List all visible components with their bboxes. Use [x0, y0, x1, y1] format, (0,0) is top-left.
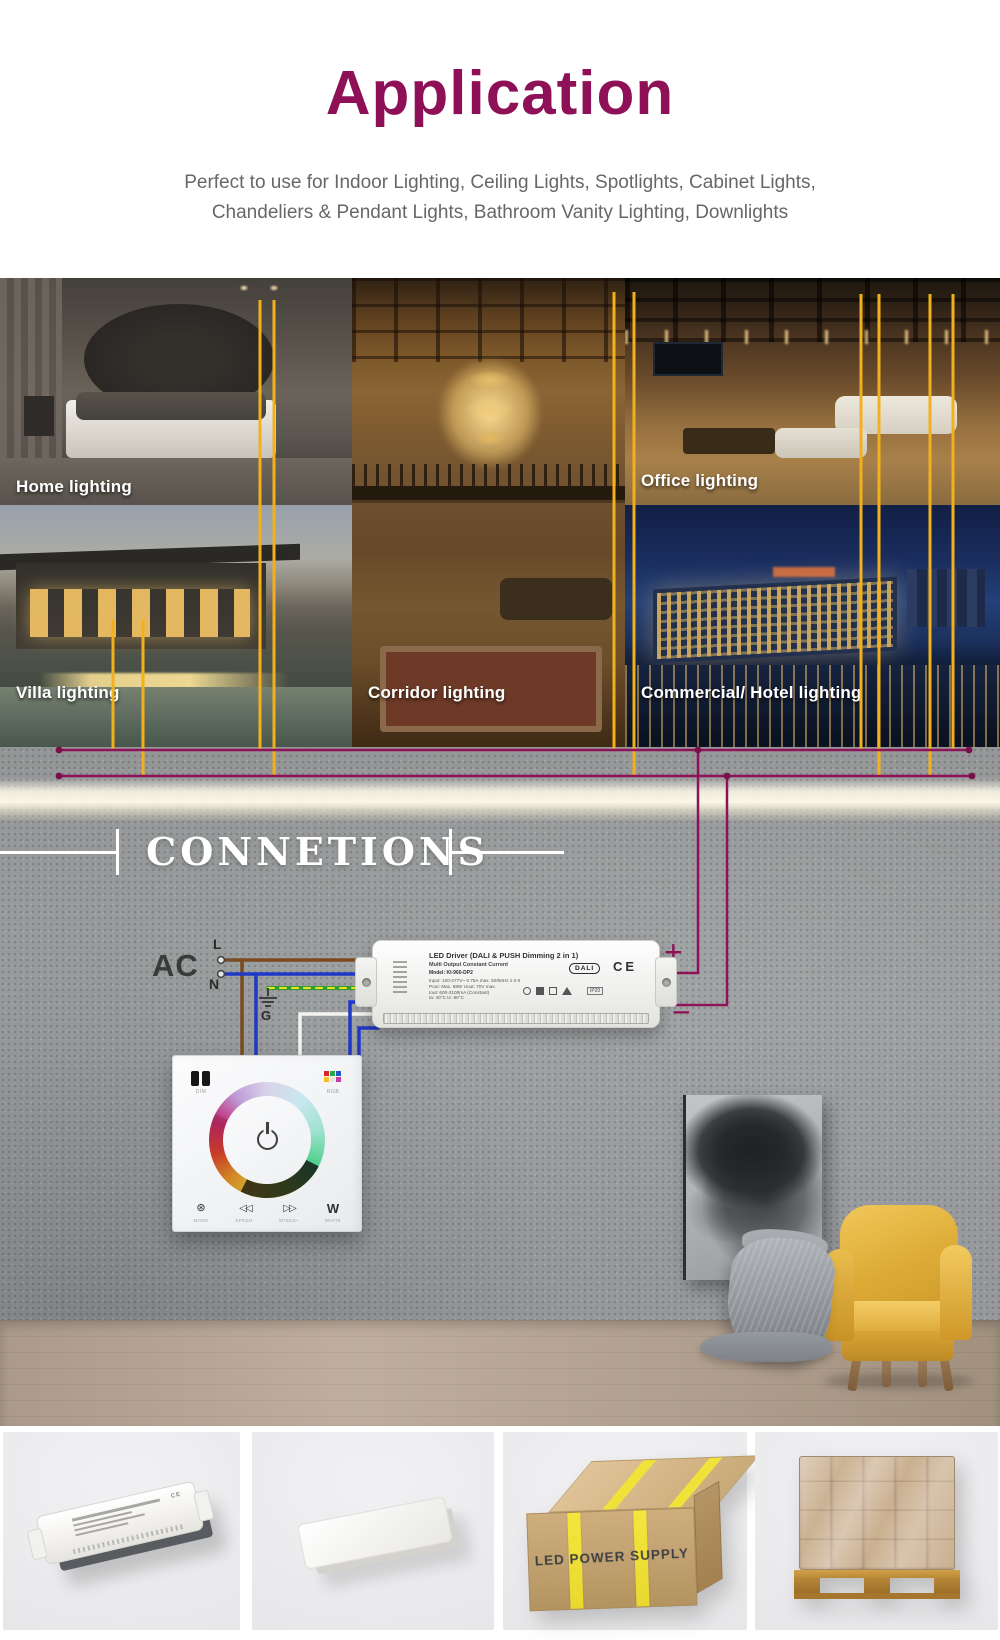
- white-key[interactable]: W WHITE: [312, 1201, 354, 1223]
- driver-mounting-ear-left: [355, 957, 377, 1007]
- photo-office-lighting: Office lighting: [625, 278, 1000, 505]
- speed-minus-key[interactable]: ◁◁ SPEED-: [224, 1201, 266, 1223]
- heading-bracket-left-line: [0, 851, 116, 854]
- screw-icon: [362, 978, 371, 987]
- duvet-shape: [76, 392, 266, 420]
- ceiling-spotlights-shape: [232, 282, 292, 294]
- screw-icon: [662, 978, 671, 987]
- photo-hotel-lighting: Commercial/ Hotel lighting: [625, 505, 1000, 747]
- subtitle-line-1: Perfect to use for Indoor Lighting, Ceil…: [0, 168, 1000, 198]
- photo-home-lighting: Home lighting: [0, 278, 352, 505]
- lit-windows-shape: [30, 589, 250, 637]
- connections-heading: CONNETIONS: [146, 829, 489, 874]
- pallet-load: [799, 1456, 955, 1570]
- pallet-feet: [794, 1578, 960, 1593]
- driver-mounting-ear-right: [655, 957, 677, 1007]
- neutral-terminal-label: N: [209, 976, 219, 992]
- tv-screen-shape: [653, 342, 723, 376]
- sofa-shape: [500, 578, 612, 620]
- led-driver-product-shape: CE: [35, 1480, 204, 1565]
- power-icon-stem: [266, 1122, 269, 1134]
- yellow-armchair: [824, 1205, 972, 1390]
- city-towers-shape: [907, 569, 985, 627]
- carton-top-face: [548, 1455, 759, 1512]
- chair-armrest-right: [940, 1245, 972, 1340]
- panel-touch-keys: ⊛ MODE ◁◁ SPEED- ▷▷ SPEED+ W WHITE: [179, 1201, 355, 1223]
- nightstand-shape: [24, 396, 54, 436]
- caption-home-lighting: Home lighting: [16, 477, 132, 497]
- rewind-icon: ◁◁: [224, 1201, 266, 1216]
- led-strip-glow: [0, 778, 1000, 822]
- hotel-building-shape: [653, 577, 897, 664]
- rgb-icon: [324, 1071, 341, 1082]
- ce-mark: CE: [613, 959, 637, 974]
- pallet-deck: [794, 1570, 960, 1578]
- cert-triangle-icon: [562, 987, 572, 995]
- caption-corridor-lighting: Corridor lighting: [368, 683, 506, 703]
- white-label: WHITE: [312, 1218, 354, 1223]
- speed-plus-key[interactable]: ▷▷ SPEED+: [268, 1201, 310, 1223]
- dim-label: DIM: [189, 1089, 213, 1095]
- mode-label: MODE: [180, 1218, 222, 1223]
- water-reflection-shape: [625, 665, 1000, 747]
- chandelier-shape: [460, 354, 520, 454]
- cert-square-icon: [536, 987, 544, 995]
- thumb-led-driver: CE: [3, 1432, 240, 1630]
- mode-wheel-icon: ⊛: [180, 1201, 222, 1216]
- photo-villa-lighting: Villa lighting: [0, 505, 352, 747]
- caption-villa-lighting: Villa lighting: [16, 683, 120, 703]
- certification-icons: [523, 987, 572, 995]
- caption-office-lighting: Office lighting: [641, 471, 758, 491]
- table-shape: [683, 428, 775, 454]
- wrapped-pallet-shape: [799, 1456, 955, 1608]
- caption-hotel-lighting: Commercial/ Hotel lighting: [641, 683, 862, 703]
- thumb-white-box: [252, 1432, 494, 1630]
- thumb-pallet: [755, 1432, 998, 1630]
- heading-bracket-left-tick: [116, 829, 119, 875]
- driver-side-markings: [393, 961, 407, 995]
- fast-forward-icon: ▷▷: [268, 1201, 310, 1216]
- speed-plus-label: SPEED+: [268, 1218, 310, 1223]
- ac-input-label: AC: [152, 948, 199, 984]
- line-terminal-label: L: [213, 936, 222, 952]
- ip-rating: IP20: [587, 987, 603, 995]
- mini-ce-mark: CE: [170, 1492, 181, 1500]
- balcony-shape: [352, 486, 625, 500]
- blanket-on-floor: [700, 1332, 832, 1362]
- cert-circle-icon: [523, 987, 531, 995]
- carton-side-face: [694, 1481, 723, 1594]
- white-packaging-box-shape: [297, 1496, 453, 1570]
- driver-spec-temp: ta: 40°C tc: 80°C: [429, 995, 605, 1001]
- white-sofa-2-shape: [775, 428, 867, 458]
- subtitle-line-2: Chandeliers & Pendant Lights, Bathroom V…: [0, 198, 1000, 228]
- white-channel-glyph: W: [312, 1201, 354, 1216]
- hotel-sign-shape: [773, 567, 835, 577]
- photo-corridor-lighting: Corridor lighting: [352, 278, 625, 747]
- page-title: Application: [0, 58, 1000, 129]
- carton-front-face: LED POWER SUPPLY: [526, 1508, 697, 1612]
- shipping-carton-shape: LED POWER SUPPLY: [524, 1455, 725, 1614]
- dali-logo: DALI: [569, 963, 600, 974]
- driver-title: LED Driver (DALI & PUSH Dimming 2 in 1): [429, 951, 605, 960]
- carton-print-text: LED POWER SUPPLY: [529, 1545, 696, 1569]
- chair-base: [842, 1331, 954, 1361]
- thumb-shipping-carton: LED POWER SUPPLY: [503, 1432, 747, 1630]
- pallet-runner: [794, 1593, 960, 1599]
- speed-minus-label: SPEED-: [224, 1218, 266, 1223]
- chair-leg: [882, 1357, 891, 1387]
- ground-terminal-label: G: [261, 1008, 271, 1023]
- led-driver-unit: LED Driver (DALI & PUSH Dimming 2 in 1) …: [372, 940, 660, 1028]
- cert-box-icon: [549, 987, 557, 995]
- dim-icon: [191, 1071, 213, 1091]
- driver-terminal-strip: [383, 1013, 649, 1024]
- rgb-label: RGB: [321, 1089, 345, 1095]
- touch-dimmer-panel: DIM RGB ⊛ MODE ◁◁ SPEED- ▷▷ SPEED+ W: [172, 1055, 362, 1232]
- chair-leg: [918, 1357, 927, 1387]
- product-description-page: Application Perfect to use for Indoor Li…: [0, 0, 1000, 1640]
- driver-label-text: LED Driver (DALI & PUSH Dimming 2 in 1) …: [429, 951, 605, 1001]
- heading-bracket-right-line: [452, 851, 564, 854]
- mode-key[interactable]: ⊛ MODE: [180, 1201, 222, 1223]
- balcony-railing-shape: [352, 464, 625, 486]
- page-subtitle: Perfect to use for Indoor Lighting, Ceil…: [0, 168, 1000, 228]
